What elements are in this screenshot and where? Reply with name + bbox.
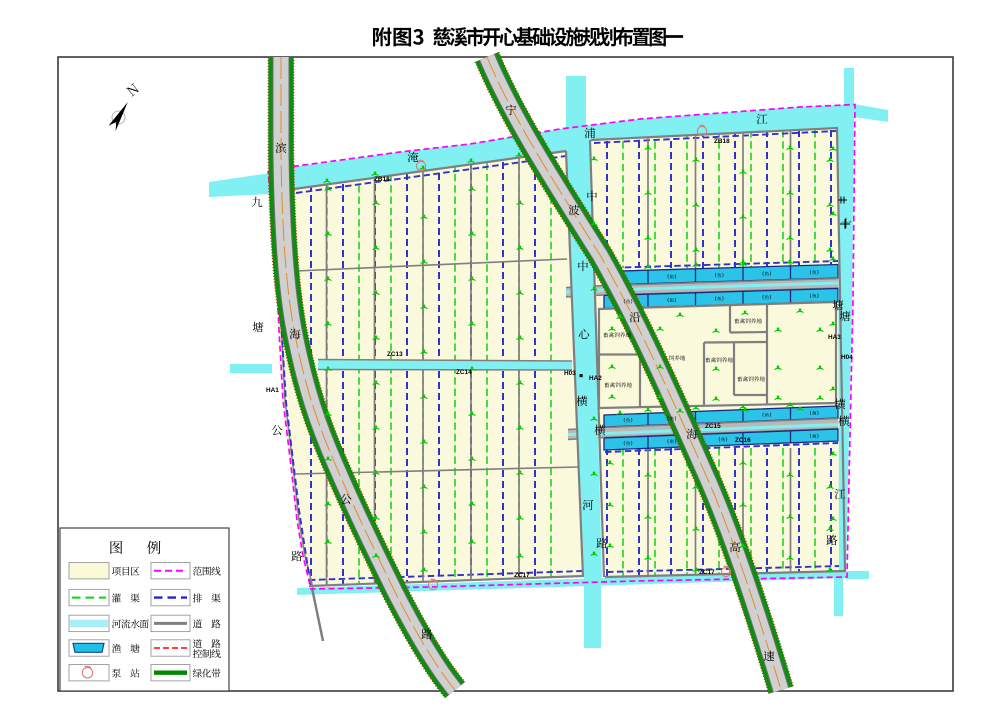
svg-text:ZC15: ZC15 [705, 423, 721, 430]
svg-text:ZC16: ZC16 [735, 437, 751, 444]
svg-text:ZB18: ZB18 [374, 176, 390, 183]
svg-text:HA3: HA3 [828, 334, 841, 341]
svg-text:ZC17: ZC17 [699, 569, 715, 576]
svg-text:HA1: HA1 [266, 387, 279, 394]
svg-text:H03: H03 [564, 370, 576, 377]
svg-text:ZC13: ZC13 [387, 351, 403, 358]
svg-text:ZC17: ZC17 [514, 572, 530, 579]
svg-text:ZB18: ZB18 [714, 138, 730, 145]
svg-text:ZC14: ZC14 [456, 369, 472, 376]
svg-text:H04: H04 [841, 354, 853, 361]
svg-text:HA2: HA2 [589, 375, 602, 382]
